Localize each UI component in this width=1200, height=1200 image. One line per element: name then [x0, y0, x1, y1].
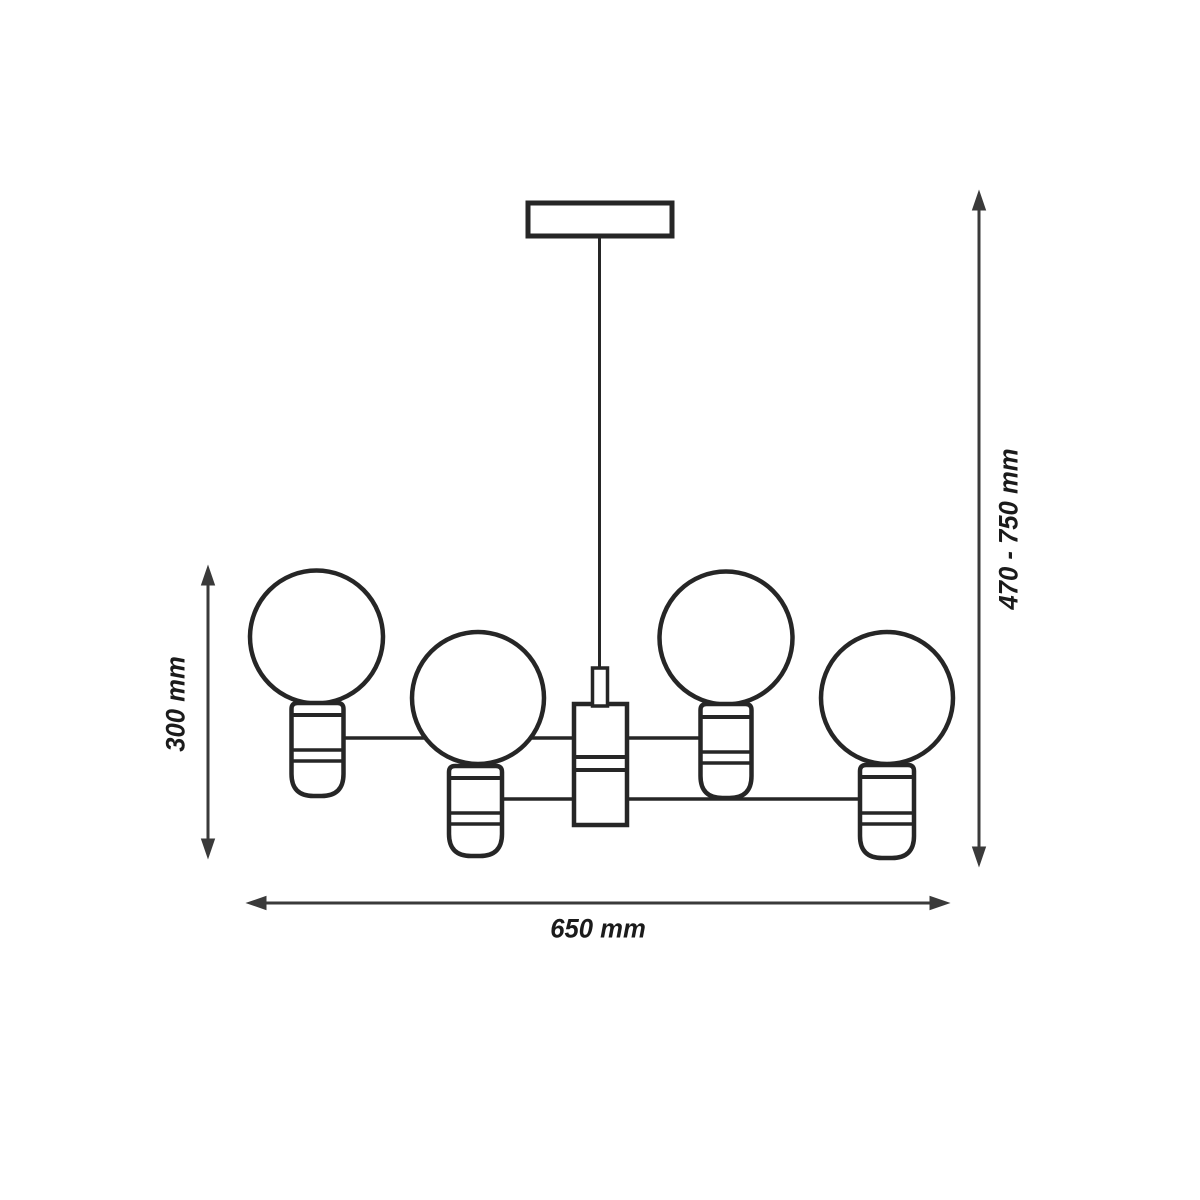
ceiling-mount-plate: [528, 203, 672, 236]
bulb-globe-4: [821, 632, 953, 764]
bulb-globe-1: [250, 571, 383, 704]
bulb-globe-2: [412, 632, 544, 764]
bulb-globe-3: [660, 572, 793, 705]
arrowhead-down-icon: [973, 847, 986, 866]
arrowhead-down-icon: [202, 839, 215, 858]
dim-overall-height-arrow: [973, 191, 986, 866]
bulb-socket-4: [860, 765, 914, 858]
bulb-socket-1: [292, 703, 344, 796]
central-hub-neck: [593, 668, 608, 706]
dim-fixture-height-arrow: [202, 566, 215, 858]
arrowhead-up-icon: [973, 191, 986, 210]
arrowhead-right-icon: [930, 897, 949, 910]
overall-height-label: 470 - 750 mm: [994, 448, 1025, 609]
central-hub-body: [574, 704, 627, 825]
diagram-canvas: 300 mm 470 - 750 mm 650 mm: [0, 0, 1200, 1200]
fixture-lines: [250, 203, 953, 858]
arrowhead-up-icon: [202, 566, 215, 585]
bulb-socket-2: [449, 766, 502, 856]
bulb-socket-3: [701, 704, 752, 798]
width-label: 650 mm: [550, 914, 646, 945]
fixture-height-label: 300 mm: [161, 656, 192, 752]
dim-width-arrow: [247, 897, 949, 910]
arrowhead-left-icon: [247, 897, 266, 910]
